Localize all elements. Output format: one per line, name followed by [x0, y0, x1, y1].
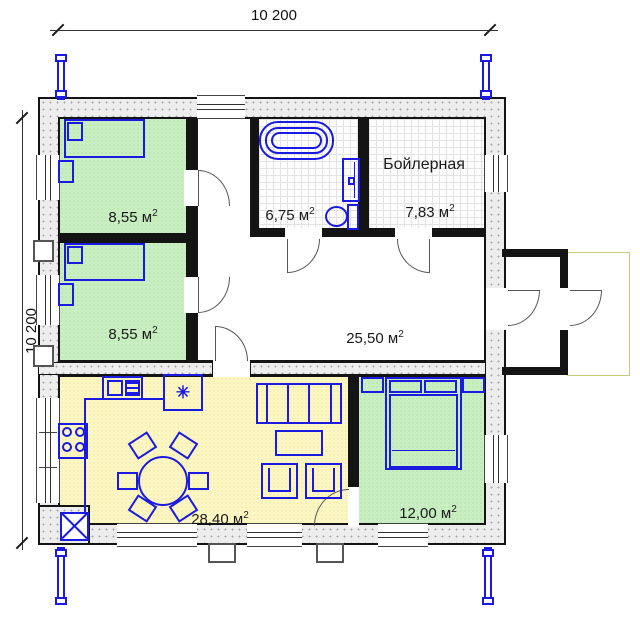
window [197, 95, 245, 119]
stove-burner [75, 442, 85, 452]
facade-pier [208, 543, 236, 563]
wall-segment [432, 230, 486, 237]
bed-body [389, 394, 458, 468]
wall-segment [560, 249, 568, 288]
window [36, 398, 60, 503]
downpipe-cap [55, 597, 67, 605]
door-opening [213, 360, 250, 377]
door-opening [285, 228, 322, 239]
room-name-boiler: Бойлерная [383, 156, 465, 174]
downpipe-cap [480, 90, 492, 98]
facade-pier [33, 240, 54, 262]
window [36, 275, 60, 325]
stove-burner [62, 427, 72, 437]
sink-bowl [107, 380, 123, 396]
nightstand [58, 160, 74, 183]
window [247, 523, 302, 547]
downpipe-cap [55, 54, 67, 62]
nightstand [58, 283, 74, 306]
nightstand [361, 377, 384, 393]
faucet [348, 177, 355, 185]
toilet-tank [347, 204, 359, 230]
armchair [261, 463, 298, 499]
sofa-seat-divider [308, 385, 310, 422]
wall-segment [250, 362, 486, 375]
door-opening [184, 170, 198, 206]
door-opening [560, 288, 568, 330]
wall-segment [58, 235, 188, 241]
wall-segment [250, 230, 285, 237]
door-opening [348, 487, 359, 527]
pillow [389, 380, 422, 393]
door-opening [395, 228, 432, 239]
downpipe-cap [482, 549, 494, 557]
floor-plan: 10 200 10 200 [0, 0, 640, 624]
wall-segment [250, 117, 259, 237]
sofa-armrest-line [330, 385, 332, 422]
wall-segment [186, 206, 198, 277]
chair [117, 472, 138, 490]
door-swing [508, 290, 540, 326]
wall-segment [322, 230, 395, 237]
downpipe-cap [482, 597, 494, 605]
wall-segment [186, 312, 198, 362]
facade-pier [316, 543, 344, 563]
room-label-bedroom1: 8,55 м2 [108, 208, 157, 226]
wall-segment [502, 249, 568, 257]
window [484, 155, 508, 192]
downpipe-cap [55, 90, 67, 98]
door-opening [184, 277, 198, 313]
room-label-hall: 25,50 м2 [346, 329, 404, 347]
dimension-label-top: 10 200 [229, 7, 319, 24]
window [378, 523, 428, 547]
dish-drainer [125, 380, 140, 396]
bathtub-basin [271, 132, 322, 149]
downpipe-cap [55, 549, 67, 557]
sofa-seat-divider [287, 385, 289, 422]
toilet-bowl [325, 206, 348, 227]
facade-pier [33, 345, 54, 367]
window [484, 435, 508, 483]
chair [188, 472, 209, 490]
wall-segment [348, 375, 359, 487]
window [36, 155, 60, 200]
room-label-boiler: 7,83 м2 [405, 203, 454, 221]
blanket-fold-line [392, 450, 455, 451]
wall-segment [186, 117, 198, 170]
room-label-bathroom: 6,75 м2 [265, 206, 314, 224]
stove-burner [75, 427, 85, 437]
pillow [67, 122, 83, 141]
fridge-icon: ✳ [176, 383, 190, 403]
pillow [67, 246, 83, 264]
stove-burner [62, 442, 72, 452]
window [117, 523, 197, 547]
nightstand [462, 377, 485, 393]
dimension-line-top [50, 30, 498, 31]
pillow [424, 380, 457, 393]
room-label-living: 28,40 м2 [191, 510, 249, 528]
downpipe-cap [480, 54, 492, 62]
armchair [305, 463, 342, 499]
room-label-bedroom3: 12,00 м2 [399, 504, 457, 522]
door-opening [486, 288, 506, 330]
wall-segment [502, 367, 568, 375]
sofa-armrest-line [266, 385, 268, 422]
room-label-bedroom2: 8,55 м2 [108, 325, 157, 343]
coffee-table [275, 430, 323, 456]
